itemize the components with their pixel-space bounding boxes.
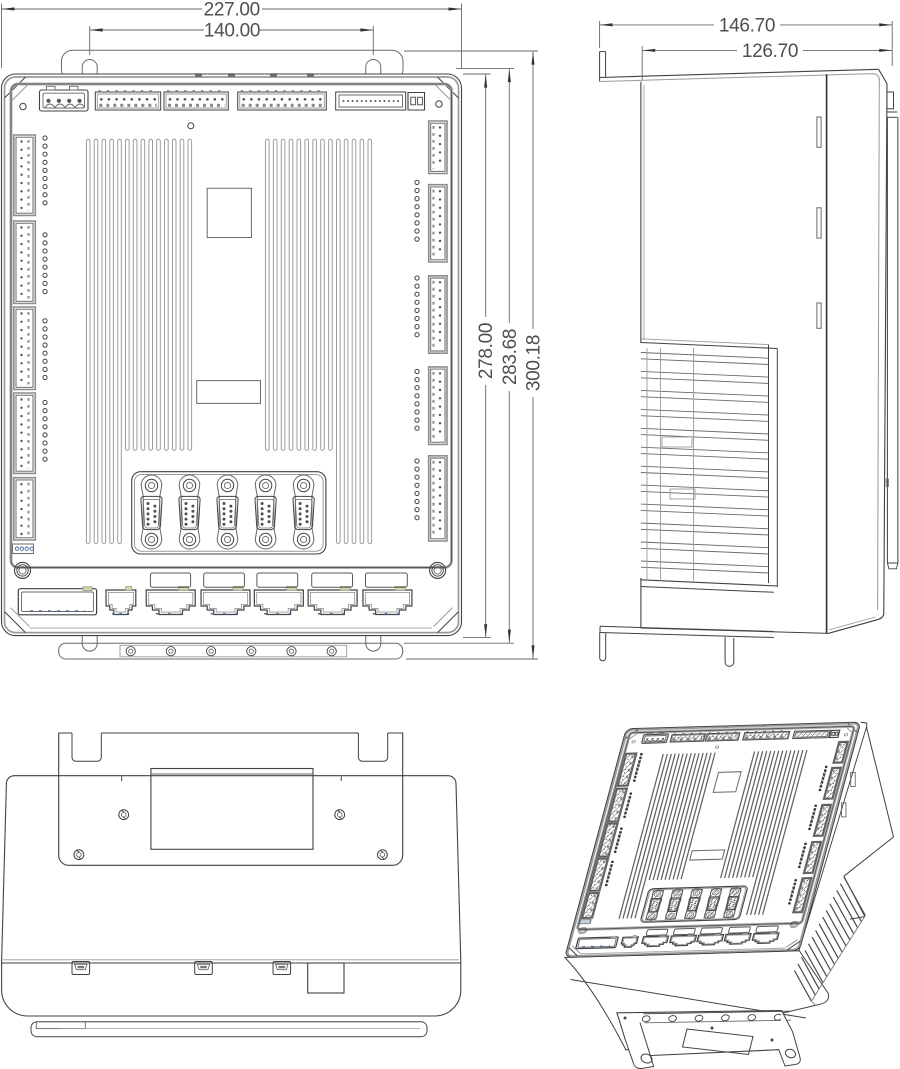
svg-text:227.00: 227.00 xyxy=(204,0,260,21)
svg-text:283.68: 283.68 xyxy=(500,329,521,385)
svg-text:140.00: 140.00 xyxy=(204,21,260,42)
svg-text:126.70: 126.70 xyxy=(742,41,798,62)
svg-text:146.70: 146.70 xyxy=(719,16,775,37)
svg-text:278.00: 278.00 xyxy=(476,323,497,379)
svg-text:300.18: 300.18 xyxy=(524,335,545,391)
